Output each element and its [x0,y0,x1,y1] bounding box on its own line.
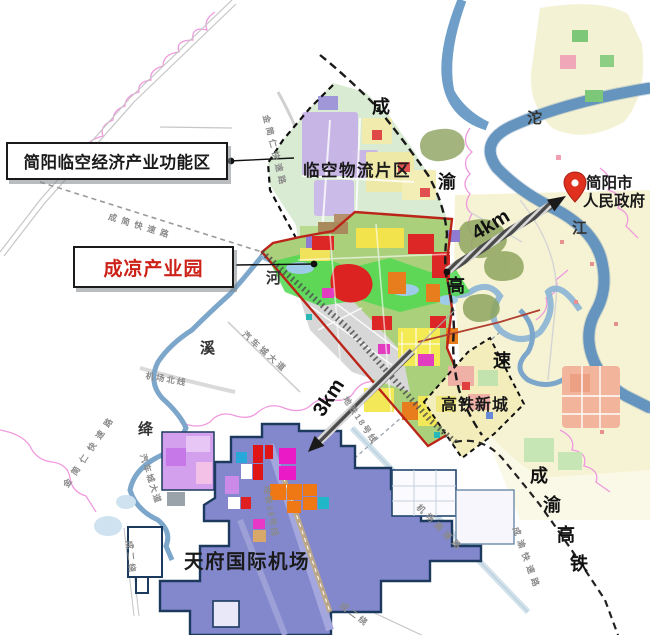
building [574,300,578,304]
callout-functional-zone-label: 简阳临空经济产业功能区 [24,149,211,173]
salmon-block-cluster [562,366,620,428]
map-canvas: 临空物流片区 高铁新城 天府国际机场 简阳市 人民政府 成 渝 高 速 成 渝 … [0,0,650,635]
callout-industrial-park: 成凉产业园 [73,246,234,288]
label-chengyu-hsr-char-0: 成 [530,465,548,486]
pond [438,295,458,305]
parcel [236,452,247,463]
label-airport-name: 天府国际机场 [184,550,310,573]
parcel [558,452,582,470]
label-logistics-district: 临空物流片区 [303,160,411,180]
hill [484,251,524,281]
airport-west-annex-notch [136,577,148,593]
parcel [279,466,296,480]
parcel [388,272,406,294]
leader-dot [311,261,318,268]
parcel [253,445,263,463]
parcel [253,519,265,529]
building [600,430,604,434]
parcel [318,96,338,110]
parcel [572,30,588,42]
parcel [241,464,252,479]
parcel [253,464,263,480]
parcel [585,90,603,102]
parcel [225,476,239,494]
parcel [462,382,470,390]
label-chengyu-hsr-char-1: 渝 [543,494,562,515]
label-chengyu-expwy-char-0: 成 [372,96,390,117]
label-hsr-new-town: 高铁新城 [441,395,509,414]
parcel [318,497,329,509]
parcel [356,228,404,248]
building [590,262,594,266]
parcel [420,188,430,197]
parcel [372,130,382,140]
parcel [408,234,434,254]
lake [94,516,122,536]
pin-inner-dot [571,179,578,186]
planning-map: 临空物流片区 高铁新城 天府国际机场 简阳市 人民政府 成 渝 高 速 成 渝 … [0,0,650,635]
parcel [570,374,590,392]
parcel [253,530,266,542]
label-jiangxi-river-char-2: 绛 [138,420,154,438]
label-chengyu-expwy-char-1: 渝 [438,171,457,192]
building [556,155,561,160]
building [614,322,618,326]
label-tuo-river-char-1: 江 [572,219,587,237]
parcel [448,366,474,386]
building [560,240,564,244]
parcel [186,436,210,452]
parcel [314,180,354,216]
label-jiangxi-river-char-1: 溪 [200,339,216,357]
parcel [524,438,554,462]
label-tuo-river-char-0: 沱 [527,109,542,127]
parcel [434,432,440,438]
parcel [322,288,334,298]
label-chengyu-hsr-char-3: 铁 [570,553,588,574]
leader-line [236,264,314,265]
parcel [478,370,498,386]
label-chengyu-hsr-char-2: 高 [557,524,575,545]
parcel [560,55,576,69]
airport-far-east-zone [456,490,514,544]
label-government-line1: 简阳市 [586,173,633,192]
parcel [600,55,614,67]
parcel [228,497,240,509]
callout-functional-zone: 简阳临空经济产业功能区 [6,142,228,180]
parcel [167,492,185,506]
lake [116,495,136,509]
label-chengyu-expwy-char-2: 高 [447,275,465,296]
leader-dot [228,158,235,165]
parcel [303,484,317,496]
label-jiangxi-river-char-0: 河 [266,269,281,287]
airport-south-block [213,601,239,627]
parcel [265,445,273,459]
parcel [287,501,301,513]
parcel [303,497,317,510]
parcel [306,314,312,320]
callout-industrial-park-label: 成凉产业园 [103,254,203,281]
parcel [241,497,251,509]
parcel [287,484,302,500]
parcel [372,316,392,330]
parcel [279,448,296,464]
parcel [378,344,390,354]
parcel [418,354,434,366]
arrow-4km-origin-dot [444,269,451,276]
label-chengyu-expwy-char-3: 速 [493,350,511,371]
parcel [426,284,440,302]
parcel [196,462,212,484]
parcel [166,448,186,466]
label-government-line2: 人民政府 [583,191,646,210]
